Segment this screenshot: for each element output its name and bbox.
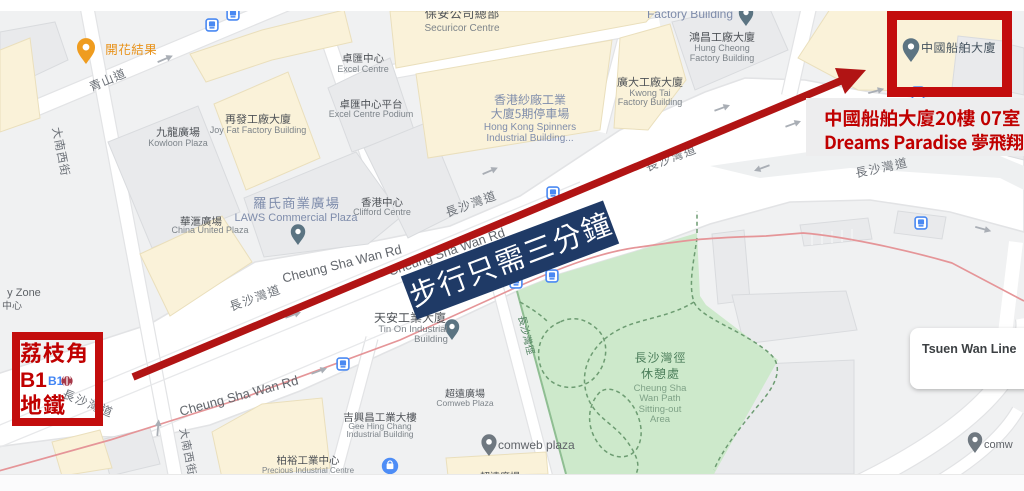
svg-text:Securicor Centre: Securicor Centre: [424, 23, 499, 34]
svg-text:Factory Building: Factory Building: [618, 97, 683, 107]
svg-text:Factory Building: Factory Building: [690, 53, 755, 63]
svg-text:Area: Area: [650, 414, 671, 425]
svg-text:Comweb Plaza: Comweb Plaza: [436, 398, 493, 408]
svg-text:Clifford Centre: Clifford Centre: [353, 207, 411, 217]
svg-text:Excel Centre: Excel Centre: [337, 64, 389, 74]
svg-text:Building: Building: [414, 334, 448, 345]
svg-text:comweb plaza: comweb plaza: [498, 438, 575, 452]
svg-text:Kowloon Plaza: Kowloon Plaza: [148, 138, 208, 148]
svg-text:Hung Cheong: Hung Cheong: [694, 43, 750, 53]
svg-text:B1: B1: [20, 369, 47, 392]
svg-text:LAWS Commercial Plaza: LAWS Commercial Plaza: [234, 212, 358, 224]
svg-text:B1: B1: [48, 374, 64, 388]
svg-text:Wan Path: Wan Path: [639, 393, 680, 404]
svg-text:Industrial Building: Industrial Building: [346, 429, 413, 439]
svg-text:y Zone: y Zone: [7, 287, 41, 299]
svg-text:Excel Centre Podium: Excel Centre Podium: [329, 109, 414, 119]
svg-text:Tsuen Wan Line: Tsuen Wan Line: [922, 342, 1016, 356]
svg-text:Joy Fat Factory Building: Joy Fat Factory Building: [210, 125, 307, 135]
svg-text:China United Plaza: China United Plaza: [171, 225, 248, 235]
svg-text:comw: comw: [984, 439, 1013, 451]
svg-text:Precious Industrial Centre: Precious Industrial Centre: [262, 466, 355, 475]
svg-text:Industrial Building...: Industrial Building...: [486, 133, 573, 144]
svg-text:Hong Kong Spinners: Hong Kong Spinners: [484, 122, 576, 133]
